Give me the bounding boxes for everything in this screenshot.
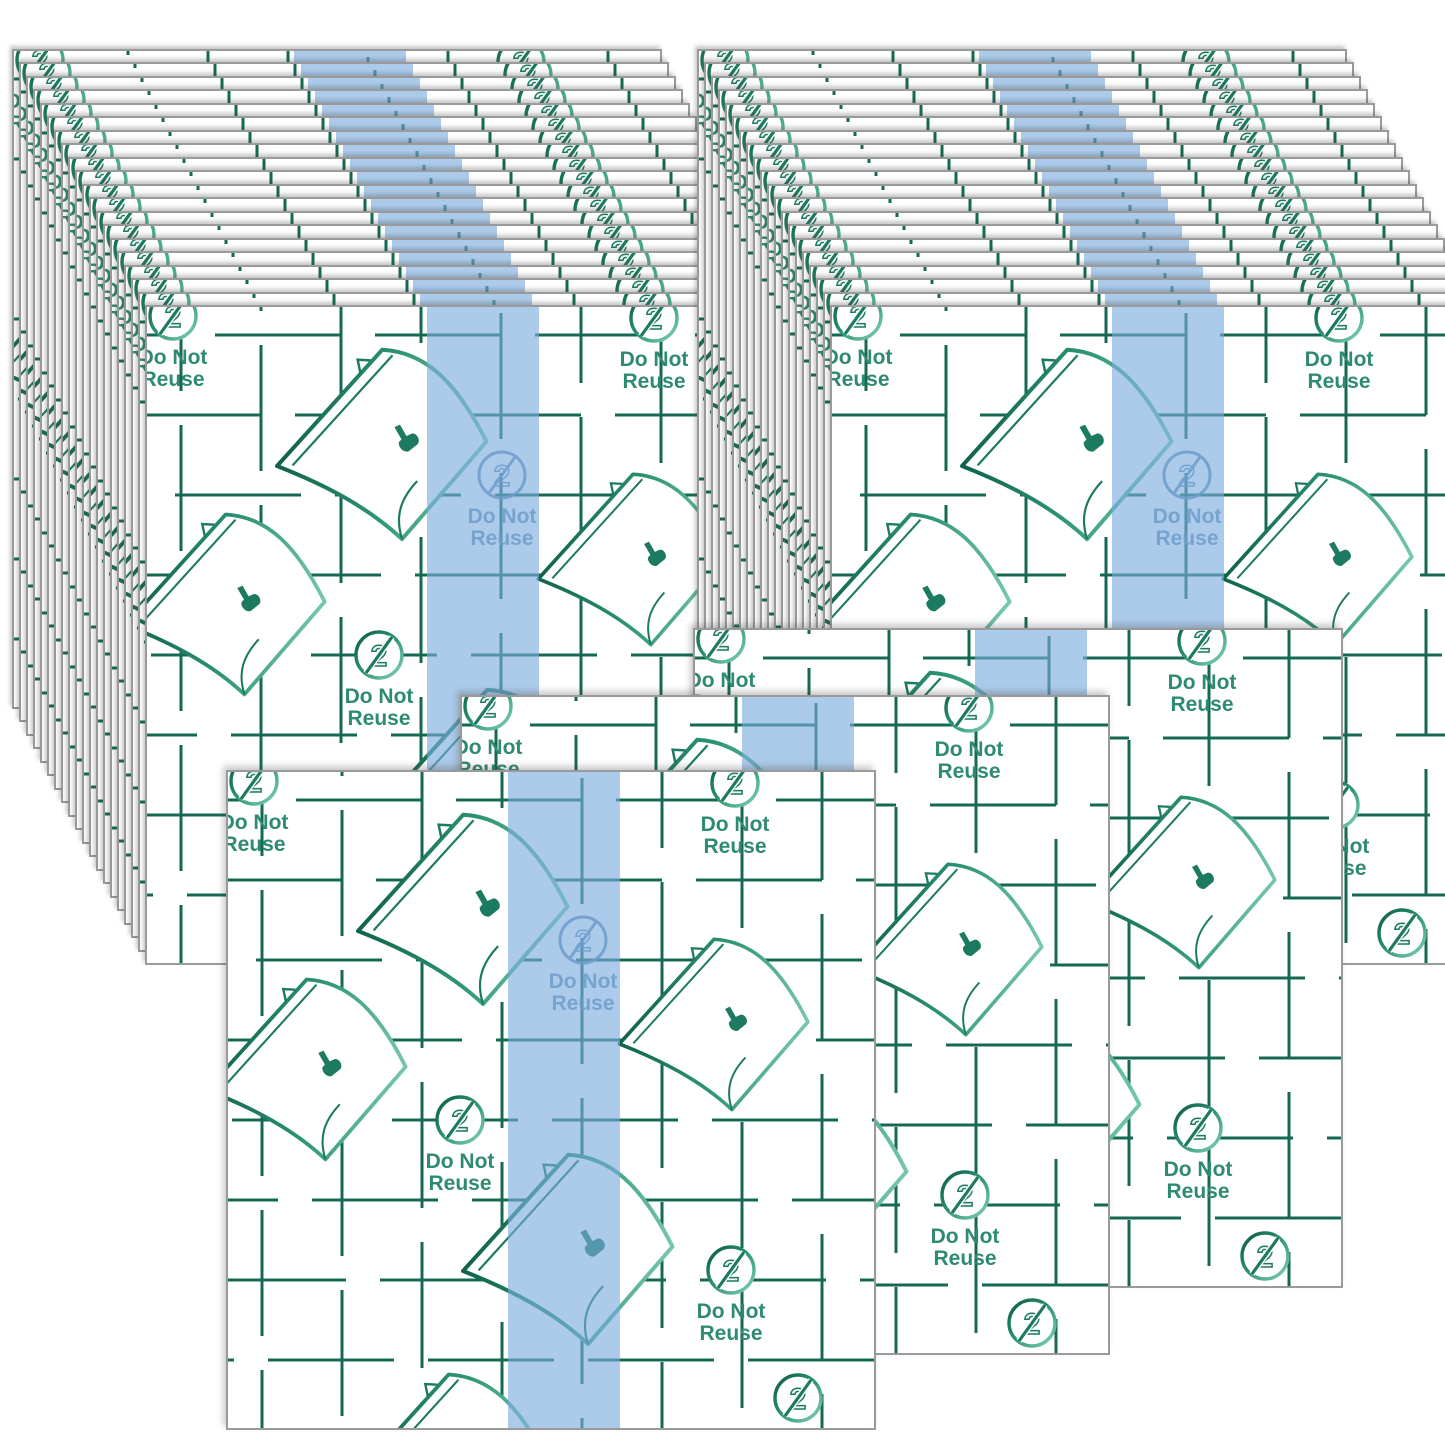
stack-sheet: [774, 197, 1424, 857]
stack-sheet: [732, 116, 1382, 776]
stack-sheet: [47, 116, 697, 776]
stack-sheet: [781, 211, 1431, 871]
stack-sheet: [739, 130, 1389, 790]
stack-sheet: [145, 305, 795, 965]
stack-sheet: [809, 265, 1445, 925]
loose-sheet-front: [226, 770, 876, 1430]
loose-sheet-back: [693, 628, 1343, 1288]
stack-sheet: [68, 157, 718, 817]
stack-sheet: [110, 238, 760, 898]
product-collage: 2 Do Not Reuse 2 Do Not Reuse: [0, 0, 1445, 1445]
stack-sheet: [75, 170, 725, 830]
stack-sheet: [103, 224, 753, 884]
sheet-stack-left: [0, 0, 1445, 1445]
stack-sheet: [131, 278, 781, 938]
stack-sheet: [82, 184, 732, 844]
stack-sheet: [26, 76, 676, 736]
stack-sheet: [788, 224, 1438, 884]
stack-sheet: [725, 103, 1375, 763]
stack-sheet: [12, 49, 662, 709]
stack-sheet: [96, 211, 746, 871]
stack-sheet: [697, 49, 1347, 709]
loose-sheet-middle: [460, 695, 1110, 1355]
stack-sheet: [802, 251, 1445, 911]
stack-sheet: [124, 265, 774, 925]
stack-sheet: [89, 197, 739, 857]
stack-sheet: [33, 89, 683, 749]
stack-sheet: [830, 305, 1445, 965]
sheet-stack-right: [0, 0, 1445, 1445]
stack-sheet: [138, 292, 788, 952]
stack-sheet: [54, 130, 704, 790]
stack-sheet: [711, 76, 1361, 736]
stack-sheet: [19, 62, 669, 722]
stack-sheet: [816, 278, 1445, 938]
stack-sheet: [117, 251, 767, 911]
stack-sheet: [767, 184, 1417, 844]
stack-sheet: [40, 103, 690, 763]
stack-sheet: [718, 89, 1368, 749]
stack-sheet: [61, 143, 711, 803]
stack-sheet: [746, 143, 1396, 803]
stack-sheet: [704, 62, 1354, 722]
stack-sheet: [795, 238, 1445, 898]
stack-sheet: [753, 157, 1403, 817]
loose-sheets: [0, 0, 1445, 1445]
stack-sheet: [760, 170, 1410, 830]
stack-sheet: [823, 292, 1445, 952]
